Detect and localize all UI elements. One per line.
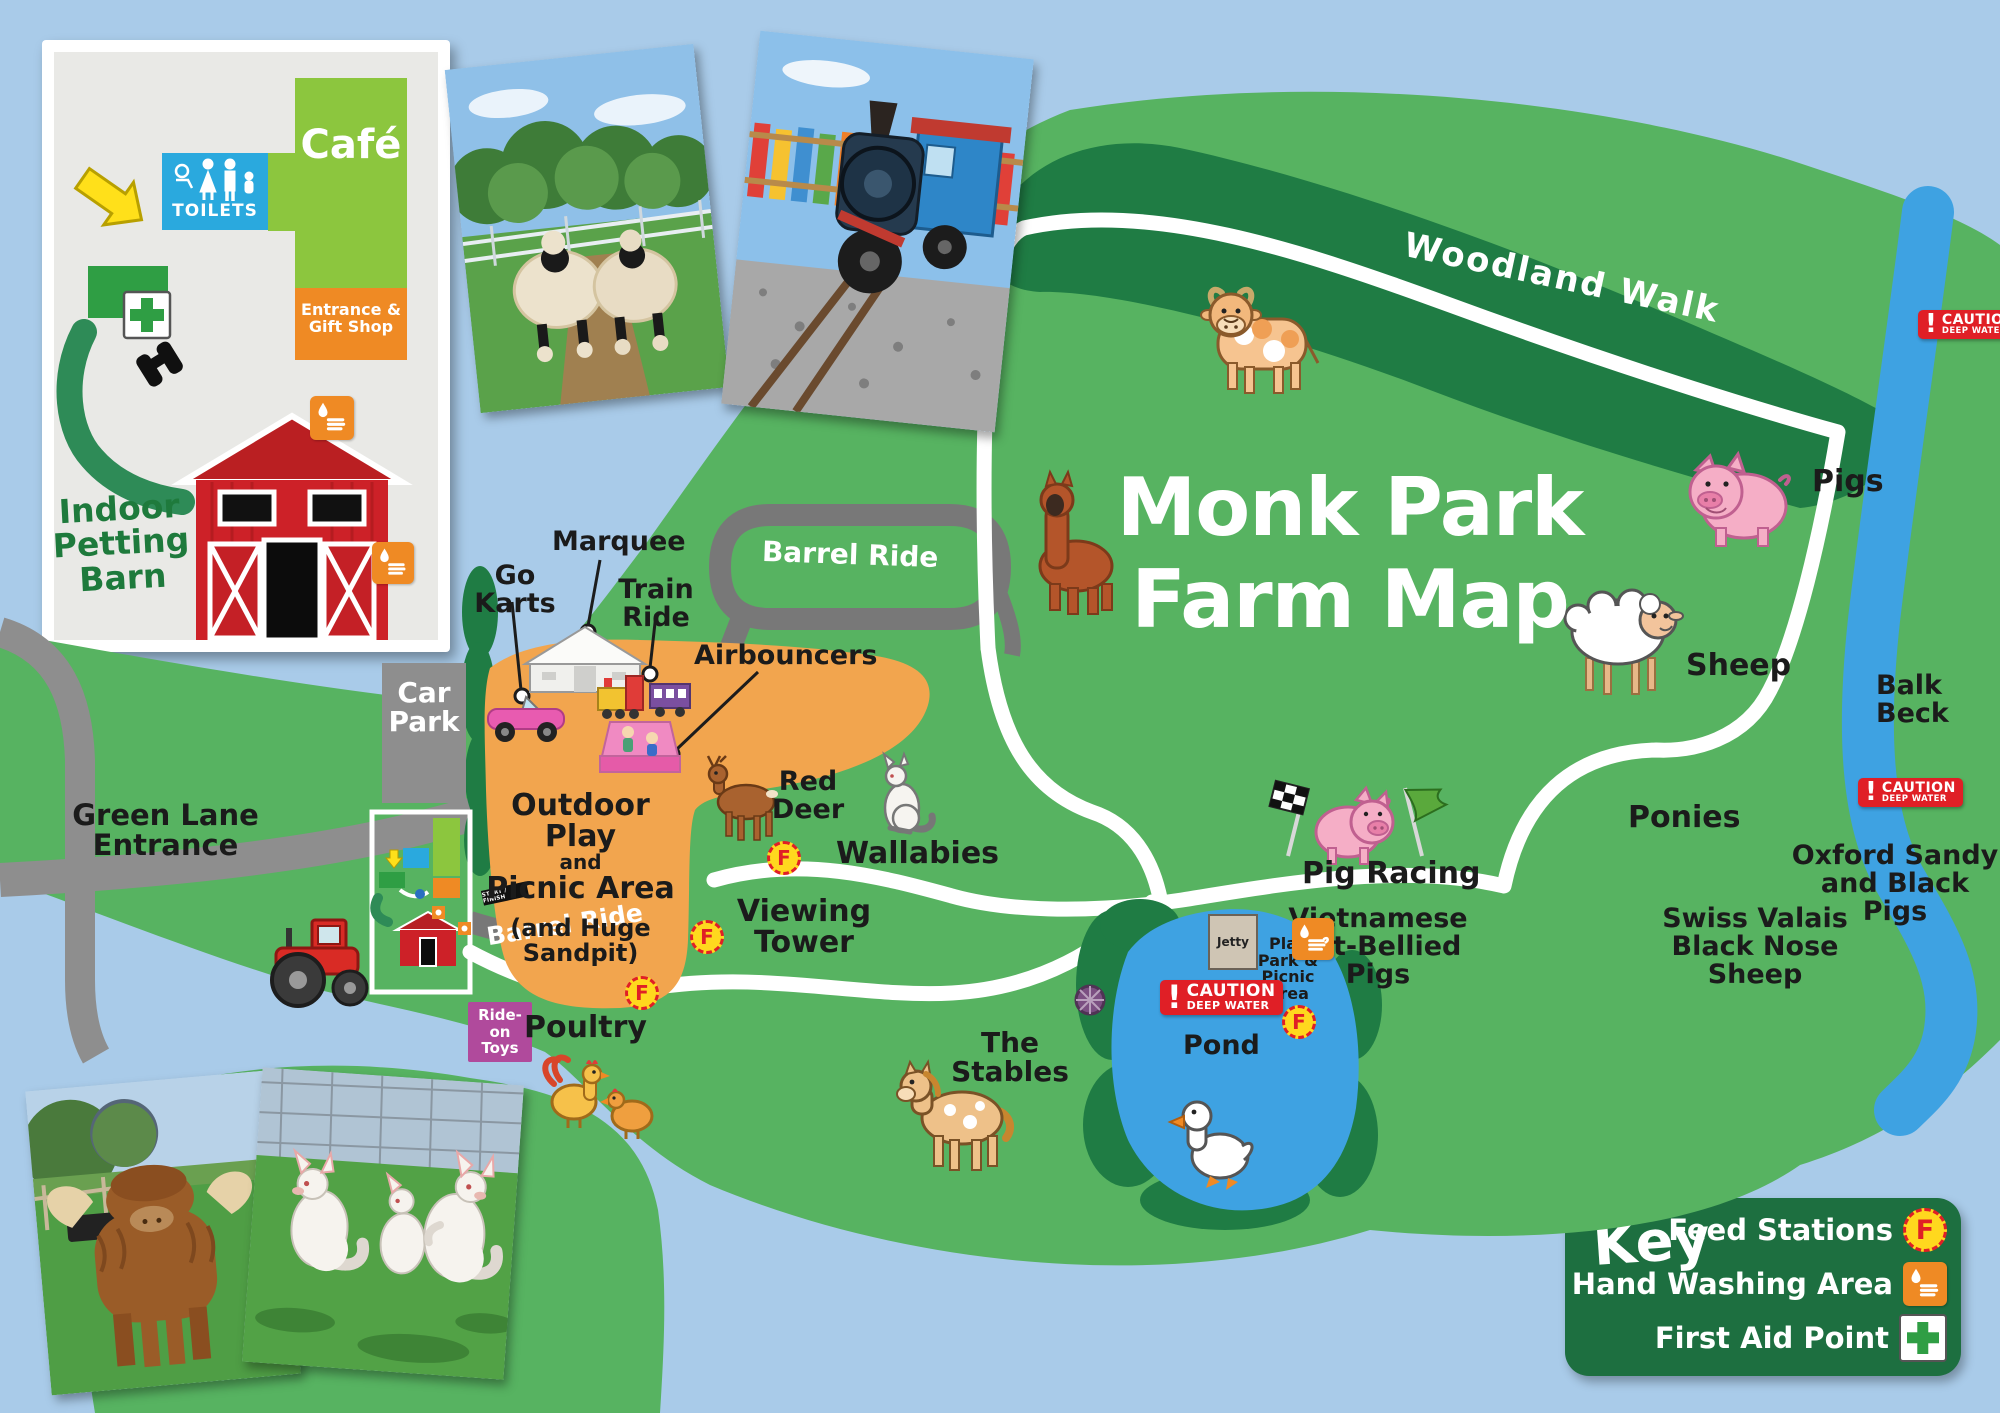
red-deer-label: Red Deer xyxy=(760,768,856,824)
wallabies-label: Wallabies xyxy=(836,838,999,869)
feed-station-icon: F xyxy=(1282,1005,1316,1039)
farm-map-poster: Woodland Walk Monk Park Farm Map Pigs Sh… xyxy=(0,0,2000,1413)
ride-on-toys-box: Ride-on Toys xyxy=(468,1002,532,1062)
viewing-tower-label: Viewing Tower xyxy=(724,896,884,958)
train-ride-label: Train Ride xyxy=(606,576,706,632)
feed-station-icon: F xyxy=(767,841,801,875)
stables-label: The Stables xyxy=(948,1028,1072,1086)
caution-deep-water-sign: ! CAUTION DEEP WATER xyxy=(1160,980,1283,1015)
map-title-line2: Farm Map xyxy=(1100,554,1600,646)
umbrella-icon xyxy=(1076,986,1104,1014)
pond-label: Pond xyxy=(1183,1032,1260,1060)
green-lane-label: Green Lane Entrance xyxy=(48,800,283,860)
swiss-sheep-label: Swiss Valais Black Nose Sheep xyxy=(1655,905,1855,989)
marquee-label: Marquee xyxy=(552,528,686,556)
feed-station-icon: F xyxy=(690,920,724,954)
sheep-photo xyxy=(445,44,730,413)
airbouncers-label: Airbouncers xyxy=(694,642,878,670)
map-title-line1: Monk Park xyxy=(1100,462,1600,554)
go-karts-label: Go Karts xyxy=(460,562,570,618)
feed-station-icon: F xyxy=(625,976,659,1010)
outdoor-play-label: Outdoor Play and Picnic Area (and Huge S… xyxy=(478,790,683,966)
poultry-label: Poultry xyxy=(524,1012,647,1043)
pig-racing-label: Pig Racing xyxy=(1302,858,1480,889)
hand-washing-icon xyxy=(1292,918,1334,960)
train-ride-photo xyxy=(721,31,1034,433)
balk-beck-label: Balk Beck xyxy=(1876,672,1986,728)
exclamation-icon: ! xyxy=(1865,781,1877,804)
exclamation-icon: ! xyxy=(1925,313,1937,336)
caution-deep-water-sign: ! CAUTION DEEP WATER xyxy=(1918,310,2000,339)
car-park-label: Car Park xyxy=(382,678,466,736)
ponies-label: Ponies xyxy=(1628,802,1740,833)
hand-washing-glyph xyxy=(1296,922,1330,956)
exclamation-icon: ! xyxy=(1167,983,1182,1012)
barrel-ride-loop-label: Barrel Ride xyxy=(762,537,939,572)
albino-wallabies-photo xyxy=(242,1067,524,1380)
pigs-label: Pigs xyxy=(1812,466,1884,497)
sheep-label: Sheep xyxy=(1686,650,1791,681)
caution-deep-water-sign: ! CAUTION DEEP WATER xyxy=(1858,778,1963,807)
airbouncer-icon xyxy=(600,722,680,772)
map-title: Monk Park Farm Map xyxy=(1100,462,1600,646)
